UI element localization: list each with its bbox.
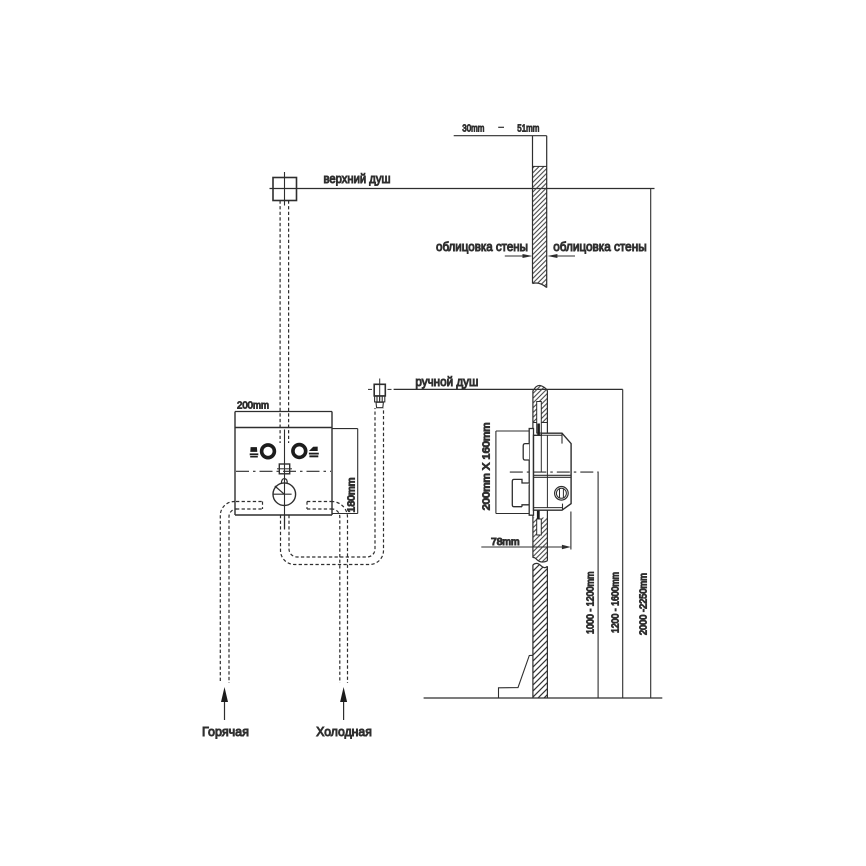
svg-text:200mm: 200mm — [237, 401, 269, 412]
svg-text:Холодная: Холодная — [316, 724, 372, 739]
svg-text:200mm X 160mm: 200mm X 160mm — [482, 422, 493, 510]
svg-text:облицовка стены: облицовка стены — [553, 239, 647, 254]
svg-text:Горячая: Горячая — [202, 724, 249, 739]
svg-text:1000 - 1200mm: 1000 - 1200mm — [585, 572, 596, 635]
svg-text:2000 -2250mm: 2000 -2250mm — [639, 573, 650, 635]
svg-text:30mm: 30mm — [462, 123, 484, 134]
svg-text:180mm: 180mm — [347, 478, 358, 513]
svg-text:ручной душ: ручной душ — [415, 374, 478, 389]
svg-text:верхний душ: верхний душ — [324, 171, 391, 186]
svg-text:78mm: 78mm — [491, 537, 520, 548]
svg-text:облицовка стены: облицовка стены — [436, 239, 528, 254]
svg-text:51mm: 51mm — [517, 123, 539, 134]
svg-text:1200 - 1600mm: 1200 - 1600mm — [611, 572, 622, 633]
